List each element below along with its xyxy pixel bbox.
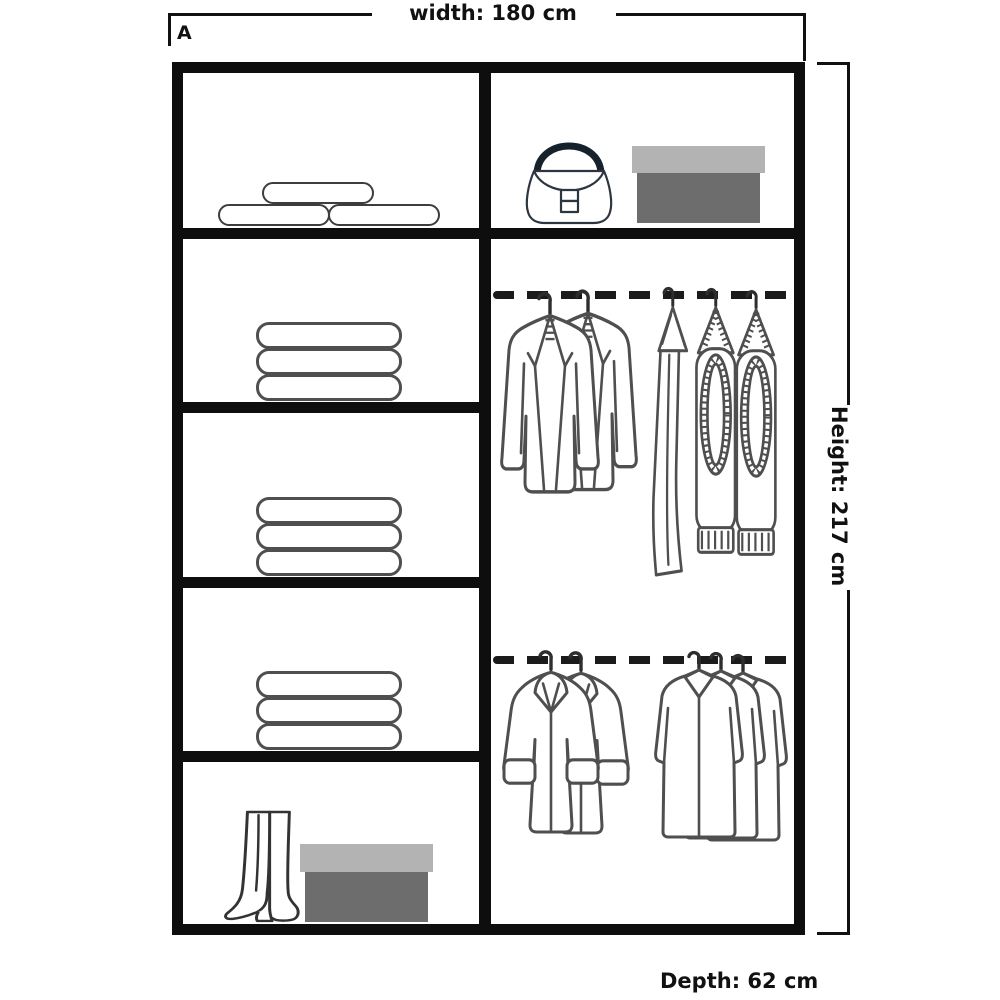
depth-dimension-label: Depth: 62 cm: [660, 969, 818, 993]
towel-icon: [256, 374, 402, 401]
towel-stack-icon: [256, 322, 402, 401]
handbag-icon: [521, 127, 617, 225]
shoebox-lid: [632, 146, 765, 173]
shoebox-lid: [300, 844, 433, 872]
boots-icon: [224, 810, 298, 924]
pillow-roll-icon: [262, 182, 374, 204]
height-bracket-top: [817, 62, 850, 405]
shelf-divider: [180, 228, 797, 239]
handbag-handle: [537, 146, 601, 173]
shelf-divider: [180, 577, 491, 588]
coat-pair-icon: [501, 650, 631, 833]
height-dimension-label: Height: 217 cm: [827, 406, 851, 586]
width-bracket-right: [616, 13, 806, 61]
towel-icon: [256, 549, 402, 576]
shoebox-base: [637, 173, 760, 223]
shelf-divider: [180, 751, 491, 762]
section-letter-label: A: [177, 22, 192, 44]
towel-icon: [256, 697, 402, 724]
shelf-divider: [180, 402, 491, 413]
towel-icon: [256, 348, 402, 375]
height-bracket-bottom: [817, 590, 850, 935]
towel-icon: [256, 671, 402, 698]
towel-stack-icon: [256, 671, 402, 750]
towel-icon: [256, 322, 402, 349]
pillow-roll-icon: [218, 204, 330, 226]
towel-icon: [256, 523, 402, 550]
pillow-roll-icon: [328, 204, 440, 226]
trouser-group-icon: [650, 287, 778, 577]
jacket-pair-icon: [500, 287, 638, 493]
towel-icon: [256, 723, 402, 750]
shoebox-base: [305, 872, 428, 922]
towel-icon: [256, 497, 402, 524]
wardrobe-layout-diagram: A width: 180 cm Height: 217 cm Depth: 62…: [0, 0, 1000, 1000]
width-dimension-label: width: 180 cm: [378, 1, 608, 25]
towel-stack-icon: [256, 497, 402, 576]
shirt-group-icon: [649, 650, 793, 838]
width-bracket-left: [168, 13, 372, 46]
center-divider-panel: [479, 70, 491, 927]
